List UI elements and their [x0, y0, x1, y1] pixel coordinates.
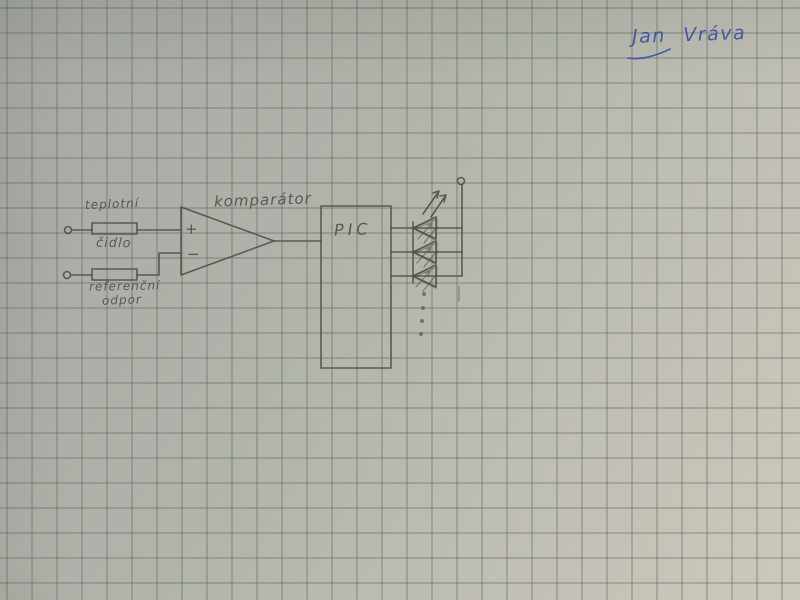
wire-bottom-to-minus [137, 253, 181, 275]
comparator-triangle [181, 207, 274, 275]
label-comparator: komparátor [214, 189, 312, 210]
comparator-plus-sign: + [185, 220, 198, 238]
signature-underline [628, 49, 670, 59]
input-terminal-bottom [64, 272, 71, 279]
signature-text: Jan Vráva [632, 22, 747, 48]
label-sensor-line1: teplotní [85, 196, 139, 212]
graph-paper-photo: + − [0, 0, 800, 600]
resistor-temperature-sensor [92, 223, 137, 234]
supply-terminal [458, 178, 465, 185]
continuation-dots [419, 292, 426, 336]
label-pic: PIC [334, 219, 372, 239]
comparator-minus-sign: − [187, 245, 200, 263]
input-terminal-top [65, 227, 72, 234]
light-emission-arrows-top [423, 191, 446, 217]
label-sensor-line2: čidlo [96, 236, 132, 252]
label-reference-line1: referenční [89, 278, 161, 293]
label-reference-line2: odpor [102, 292, 142, 307]
